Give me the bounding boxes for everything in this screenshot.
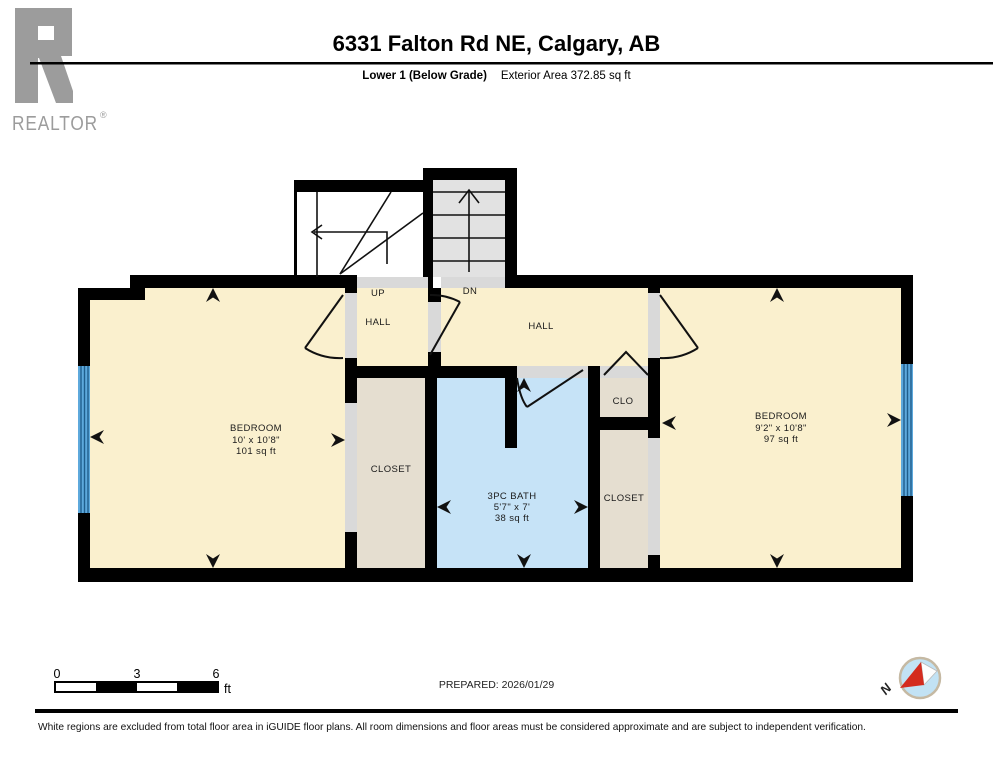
hall-right-label: HALL [528, 321, 553, 332]
wall-segment [425, 366, 437, 570]
registered-mark: ® [100, 110, 107, 120]
prepared-date-label: PREPARED: 2026/01/29 [0, 679, 993, 691]
wall-segment [513, 275, 901, 288]
hall-door-opening [428, 302, 441, 352]
wall-segment [423, 168, 433, 288]
floor-label: Lower 1 (Below Grade) [362, 70, 487, 82]
svg-text:BEDROOM: BEDROOM [755, 411, 807, 422]
hall-left-label: HALL [365, 317, 390, 328]
floor-subtitle: Lower 1 (Below Grade)Exterior Area 372.8… [0, 70, 993, 82]
window-right [901, 361, 913, 499]
clo-label: CLO [613, 396, 634, 407]
bedroom-left-fill [90, 288, 345, 568]
svg-text:BEDROOM: BEDROOM [230, 423, 282, 434]
wall-segment [423, 168, 517, 180]
svg-text:38 sq ft: 38 sq ft [495, 513, 529, 524]
stair-up-threshold [357, 277, 428, 288]
closet-left-opening [345, 403, 357, 532]
wall-segment [648, 555, 660, 570]
compass: N [877, 658, 940, 698]
svg-text:97 sq ft: 97 sq ft [764, 434, 798, 445]
svg-text:5'7" x 7': 5'7" x 7' [494, 502, 530, 513]
wall-segment [345, 288, 357, 293]
wall-segment [648, 288, 660, 293]
closet-left-label: CLOSET [371, 464, 411, 475]
svg-text:101 sq ft: 101 sq ft [236, 446, 276, 457]
svg-text:3PC BATH: 3PC BATH [488, 491, 537, 502]
wall-segment [505, 168, 517, 288]
footer-rule [35, 709, 958, 713]
wall-segment [294, 180, 297, 277]
wall-segment [588, 366, 600, 570]
page-title: 6331 Falton Rd NE, Calgary, AB [0, 31, 993, 57]
svg-text:9'2" x 10'8": 9'2" x 10'8" [755, 423, 807, 434]
closet-right-opening [648, 438, 660, 555]
bedroom-right-door-opening [648, 293, 660, 358]
wall-segment [588, 417, 660, 430]
bath-label: 3PC BATH 5'7" x 7' 38 sq ft [488, 491, 537, 524]
wall-segment [345, 358, 357, 403]
wall-segment [137, 275, 357, 288]
exterior-area-label: Exterior Area 372.85 sq ft [501, 70, 631, 82]
bath-door-opening [517, 366, 588, 378]
bedroom-left-door-opening [345, 293, 357, 358]
wall-segment [901, 275, 913, 363]
svg-text:10' x 10'8": 10' x 10'8" [232, 435, 280, 446]
closet-right-label: CLOSET [604, 493, 644, 504]
stair-dn-label: DN [463, 286, 478, 297]
stair-up-label: UP [371, 288, 385, 299]
window-left [78, 363, 90, 516]
wall-segment [295, 180, 430, 192]
wall-segment [505, 366, 517, 448]
realtor-logo-text: REALTOR [12, 113, 98, 135]
wall-segment [437, 366, 505, 378]
bedroom-left-label: BEDROOM 10' x 10'8" 101 sq ft [230, 423, 282, 457]
disclaimer-note: White regions are excluded from total fl… [38, 722, 968, 733]
wall-segment [345, 532, 357, 570]
wall-segment [78, 568, 913, 582]
header-rule [30, 62, 993, 65]
wall-segment [345, 366, 437, 378]
floor-plan-canvas: REALTOR ® [0, 0, 993, 768]
